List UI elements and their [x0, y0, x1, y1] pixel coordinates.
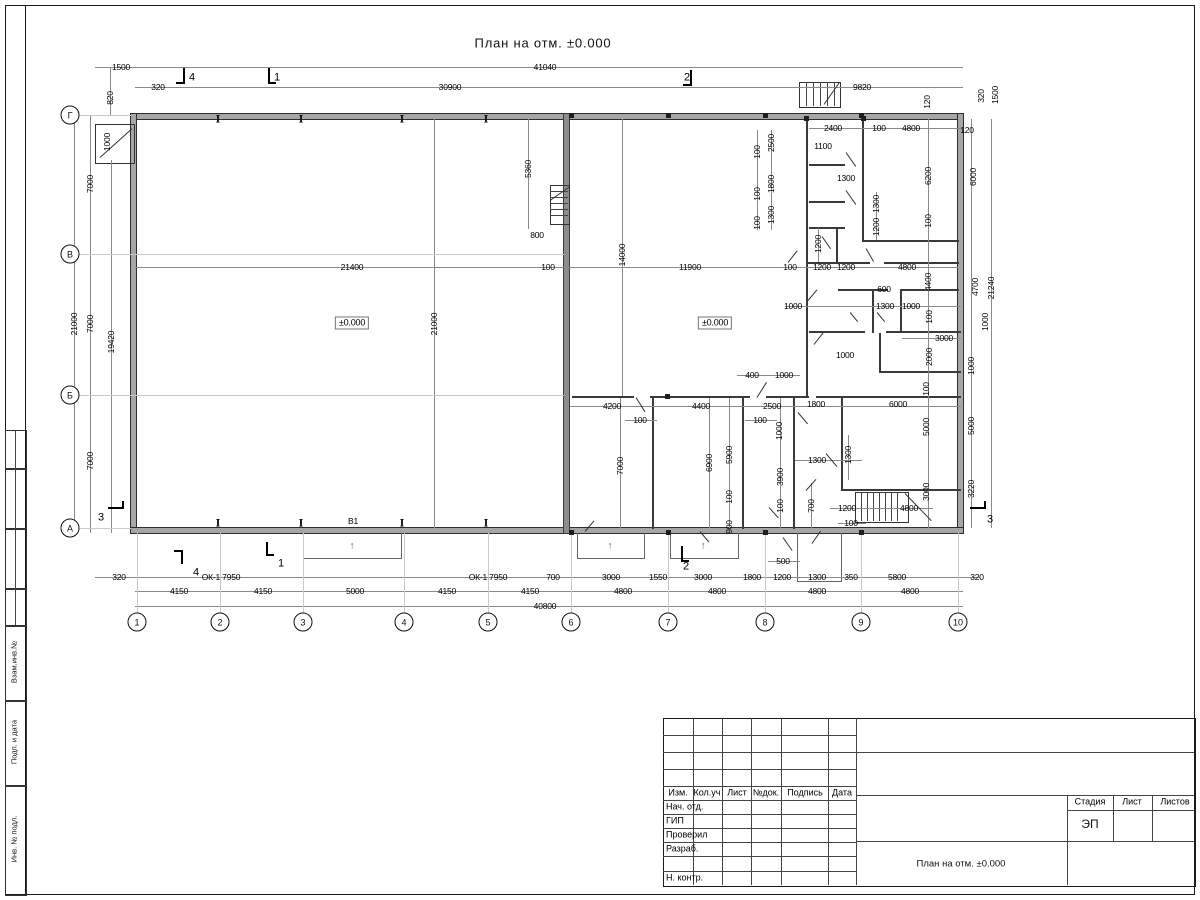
section-number: 1	[278, 559, 284, 570]
titleblock-line	[1067, 810, 1194, 811]
dim-label: 100	[633, 416, 647, 425]
titleblock-header: Лист	[727, 789, 747, 798]
partition-wall	[809, 201, 845, 203]
dim-label: 5000	[922, 418, 931, 436]
titleblock-line	[722, 718, 723, 885]
titleblock-line	[751, 718, 752, 885]
dim-label: 5000	[346, 587, 364, 596]
dim-label: 1200	[837, 263, 855, 272]
stair-riser	[897, 492, 898, 521]
dim-label: 3900	[776, 468, 785, 486]
axis-line	[571, 533, 572, 613]
dim-label: 19420	[107, 331, 116, 354]
axis-bubble-left: В	[61, 245, 80, 264]
dim-label: 6200	[924, 167, 933, 185]
entrance-arrow-icon: ↑	[608, 541, 613, 552]
section-tick	[122, 501, 124, 509]
stair-riser	[873, 492, 874, 521]
drawing-sheet: План на отм. ±0.000 IIIIIIII 15004104032…	[0, 0, 1200, 900]
dim-label: 7000	[616, 457, 625, 475]
dim-label: 21400	[341, 263, 364, 272]
dim-label: 1100	[814, 142, 831, 151]
dim-label: 1300	[808, 573, 826, 582]
dim-label: 4800	[901, 587, 919, 596]
axis-line	[79, 395, 135, 396]
pilaster-icon: I	[484, 115, 489, 126]
dim-label: 3000	[602, 573, 620, 582]
dim-label: 100	[922, 382, 931, 396]
axis-line	[137, 533, 138, 613]
axis-line	[861, 533, 862, 613]
dim-label: 100	[725, 490, 734, 504]
margin-label: Инв. № подл.	[10, 816, 19, 863]
titleblock-header: Изм.	[668, 789, 687, 798]
titleblock-header: Кол.уч	[694, 789, 721, 798]
titleblock-line	[663, 856, 856, 857]
dim-label: 1300	[767, 206, 776, 224]
pilaster-icon: I	[299, 519, 304, 530]
axis-line	[79, 528, 131, 529]
dim-label: 4800	[900, 504, 918, 513]
section-tick	[181, 550, 183, 564]
dim-label: 1200	[813, 263, 831, 272]
titleblock-line	[663, 752, 856, 753]
titleblock-line	[781, 718, 782, 885]
axis-bubble-bottom: 3	[294, 613, 313, 632]
stair-riser	[879, 492, 880, 521]
dim-label: 100	[925, 310, 934, 324]
dim-label: 4400	[692, 402, 710, 411]
axis-line	[404, 533, 405, 613]
wall	[564, 114, 569, 533]
axis-bubble-bottom: 9	[852, 613, 871, 632]
axis-bubble-left: А	[61, 519, 80, 538]
dim-label: 500	[776, 557, 790, 566]
partition-wall	[806, 119, 808, 398]
dim-label: 320	[112, 573, 126, 582]
dim-label: 1200	[838, 504, 856, 513]
dim-label: 1300	[844, 446, 853, 464]
partition-wall	[900, 289, 902, 333]
dim-label: 900	[725, 520, 734, 534]
partition-wall	[872, 289, 874, 333]
dim-label: 120	[960, 126, 974, 135]
dim-label: 4800	[898, 263, 916, 272]
dim-label: 1000	[775, 422, 784, 440]
dim-label: 6000	[969, 168, 978, 186]
sheet-header: Лист	[1122, 798, 1142, 807]
dim-label: 1800	[743, 573, 761, 582]
dim-label: 1500	[991, 86, 1000, 104]
dim-label: 700	[807, 499, 816, 513]
partition-wall	[809, 227, 845, 229]
titleblock-role: Н. контр.	[666, 874, 703, 883]
partition-wall	[843, 489, 961, 491]
axis-bubble-left: Б	[61, 386, 80, 405]
dim-label: 1000	[967, 357, 976, 375]
elevation-mark: ±0.000	[335, 317, 369, 330]
partition-wall	[841, 398, 843, 491]
axis-bubble-bottom: 10	[949, 613, 968, 632]
section-tick	[984, 501, 986, 509]
dim-label: 4700	[971, 278, 980, 296]
dim-label: 3000	[694, 573, 712, 582]
axis-bubble-bottom: 5	[479, 613, 498, 632]
sheets-header: Листов	[1160, 798, 1189, 807]
axis-bubble-bottom: 8	[756, 613, 775, 632]
dim-label: 400	[745, 371, 759, 380]
section-tick	[683, 84, 691, 86]
titleblock-header: №док.	[753, 789, 779, 798]
dim-label: 1550	[649, 573, 667, 582]
stair-riser	[806, 82, 807, 106]
margin-label: Подп. и дата	[10, 720, 19, 764]
stage-header: Стадия	[1075, 798, 1106, 807]
titleblock-role: Проверил	[666, 831, 707, 840]
dim-label: 120	[923, 95, 932, 109]
dim-label: 1800	[807, 400, 825, 409]
axis-bubble-bottom: 1	[128, 613, 147, 632]
dim-label: 5000	[967, 417, 976, 435]
dim-label: 100	[783, 263, 797, 272]
dim-line	[991, 119, 992, 528]
pilaster-icon: I	[400, 115, 405, 126]
partition-wall	[884, 262, 959, 264]
dim-label: 3000	[935, 334, 953, 343]
dim-label: 100	[753, 416, 767, 425]
partition-wall	[863, 240, 959, 242]
stair-riser	[827, 82, 828, 106]
titleblock-line	[856, 752, 1194, 753]
section-number: 2	[684, 73, 690, 84]
stair-riser	[550, 209, 568, 210]
partition-wall	[816, 396, 961, 398]
dim-line	[785, 306, 961, 307]
dim-label: ОК-1 7950	[202, 573, 241, 582]
titleblock-role: Разраб.	[666, 845, 698, 854]
partition-wall	[836, 229, 838, 264]
dim-label: 600	[877, 285, 891, 294]
dim-label: ОК-1 7950	[469, 573, 508, 582]
titleblock-line	[856, 841, 1194, 842]
dim-label: 100	[753, 145, 762, 159]
dim-label: 5360	[524, 160, 533, 178]
dim-label: 1000	[981, 313, 990, 331]
pilaster-icon: I	[216, 115, 221, 126]
axis-line	[765, 533, 766, 613]
column-marker	[569, 113, 574, 118]
dim-label: 2000	[925, 348, 934, 366]
dim-label: 4150	[521, 587, 539, 596]
dim-label: 7000	[86, 452, 95, 470]
column-marker	[859, 530, 864, 535]
column-marker	[665, 394, 670, 399]
dim-label: 1000	[836, 351, 854, 360]
margin-divider	[15, 430, 16, 625]
dim-label: 1500	[112, 63, 130, 72]
axis-bubble-bottom: 2	[211, 613, 230, 632]
titleblock-line	[828, 718, 829, 885]
pilaster-icon: I	[484, 519, 489, 530]
stair-riser	[891, 492, 892, 521]
section-number: 2	[683, 562, 689, 573]
axis-line	[135, 395, 564, 396]
dim-label: 1800	[767, 175, 776, 193]
partition-wall	[809, 331, 865, 333]
axis-line	[79, 254, 135, 255]
partition-wall	[809, 164, 845, 166]
margin-label: Взам.инв.№	[10, 641, 19, 683]
partition-wall	[766, 396, 809, 398]
dim-label: 350	[844, 573, 858, 582]
dim-label: 6000	[889, 400, 907, 409]
dim-label: 320	[151, 83, 165, 92]
dim-label: 6900	[705, 454, 714, 472]
dim-label: 1200	[872, 218, 881, 236]
titleblock-line	[663, 735, 856, 736]
axis-line	[135, 254, 564, 255]
axis-bubble-bottom: 4	[395, 613, 414, 632]
dim-label: 7000	[86, 315, 95, 333]
axis-bubble-bottom: 6	[562, 613, 581, 632]
pilaster-icon: I	[299, 115, 304, 126]
pilaster-icon: I	[400, 519, 405, 530]
section-number: 4	[193, 568, 199, 579]
dim-label: 4150	[254, 587, 272, 596]
dim-label: 4150	[438, 587, 456, 596]
dim-label: 100	[844, 519, 858, 528]
titleblock-line	[1067, 795, 1068, 885]
dim-label: 100	[776, 499, 785, 513]
axis-line	[79, 115, 131, 116]
dim-label: 9820	[853, 83, 871, 92]
section-number: 4	[189, 73, 195, 84]
dim-label: 11900	[679, 263, 701, 272]
dim-label: 100	[541, 263, 555, 272]
titleblock-line	[663, 769, 856, 770]
section-number: 3	[987, 515, 993, 526]
stair-riser	[885, 492, 886, 521]
dim-label: 320	[970, 573, 984, 582]
partition-wall	[879, 333, 881, 373]
margin-cell	[5, 468, 27, 530]
entrance-arrow-icon: ↑	[701, 541, 706, 552]
dim-label: 4400	[924, 273, 933, 291]
wall	[131, 114, 136, 533]
stair-riser	[820, 82, 821, 106]
wall	[958, 114, 963, 533]
dim-label: 100	[753, 187, 762, 201]
dim-label: 820	[106, 91, 115, 105]
dim-label: 100	[924, 214, 933, 228]
partition-wall	[793, 398, 795, 529]
column-marker	[861, 116, 866, 121]
column-marker	[666, 113, 671, 118]
dim-label: 1300	[876, 302, 894, 311]
dim-label: 41040	[534, 63, 557, 72]
dim-label: 320	[977, 89, 986, 103]
stair-riser	[867, 492, 868, 521]
dim-label: 5800	[888, 573, 906, 582]
titleblock-header: Дата	[832, 789, 852, 798]
section-tick	[174, 550, 182, 552]
dim-label: 4800	[902, 124, 920, 133]
elevation-mark: ±0.000	[698, 317, 732, 330]
dim-line	[135, 87, 963, 88]
stair-riser	[861, 492, 862, 521]
pilaster-icon: I	[216, 519, 221, 530]
titleblock-line	[663, 814, 856, 815]
titleblock-line	[856, 718, 857, 885]
titleblock-header: Подпись	[787, 789, 823, 798]
dim-label: 1200	[773, 573, 791, 582]
titleblock-line	[1113, 795, 1114, 841]
titleblock-frame	[663, 718, 1196, 887]
axis-bubble-left: Г	[61, 106, 80, 125]
dim-label: 4200	[603, 402, 621, 411]
dim-label: 1300	[808, 456, 826, 465]
dim-line	[95, 67, 963, 68]
axis-line	[303, 533, 304, 613]
column-marker	[569, 530, 574, 535]
stair-riser	[813, 82, 814, 106]
column-marker	[804, 116, 809, 121]
dim-label: 1000	[775, 371, 793, 380]
partition-wall	[652, 398, 654, 529]
margin-cell	[5, 528, 27, 590]
dim-label: 2400	[824, 124, 842, 133]
dim-label: 7000	[86, 175, 95, 193]
partition-wall	[572, 396, 634, 398]
dim-label: 800	[530, 231, 544, 240]
dim-label: В1	[348, 517, 358, 526]
dim-label: 4800	[808, 587, 826, 596]
dim-label: 21000	[430, 313, 439, 336]
column-marker	[763, 113, 768, 118]
dim-label: 21000	[70, 313, 79, 336]
column-marker	[666, 530, 671, 535]
dim-label: 1200	[814, 235, 823, 253]
column-marker	[763, 530, 768, 535]
entrance-arrow-icon: ↑	[350, 541, 355, 552]
dim-label: 2500	[763, 402, 781, 411]
dim-label: 2500	[767, 134, 776, 152]
titleblock-role: Нач. отд.	[666, 803, 703, 812]
titleblock-line	[1152, 795, 1153, 841]
dim-label: 4150	[170, 587, 188, 596]
dim-label: 700	[546, 573, 560, 582]
dim-label: 4800	[614, 587, 632, 596]
titleblock-line	[856, 795, 1194, 796]
dim-label: 3000	[922, 483, 931, 501]
dim-label: 1000	[103, 133, 112, 151]
dim-label: 1000	[902, 302, 920, 311]
dim-label: 1300	[872, 195, 881, 213]
dim-label: 40800	[534, 602, 557, 611]
partition-wall	[862, 119, 864, 242]
partition-wall	[879, 371, 961, 373]
dim-label: 100	[753, 216, 762, 230]
wall	[131, 114, 963, 119]
stair-riser	[550, 203, 568, 204]
dim-label: 3220	[967, 480, 976, 498]
dim-label: 30900	[439, 83, 462, 92]
axis-line	[668, 533, 669, 613]
section-tick	[266, 554, 274, 556]
dim-label: 1000	[784, 302, 802, 311]
dim-label: 14000	[618, 244, 627, 267]
partition-wall	[742, 398, 744, 529]
dim-label: 21240	[987, 277, 996, 300]
section-tick	[176, 82, 184, 84]
dim-label: 100	[872, 124, 886, 133]
dim-label: 4800	[708, 587, 726, 596]
stair-riser	[550, 191, 568, 192]
margin-cell	[5, 588, 27, 627]
stair-riser	[834, 82, 835, 106]
axis-bubble-bottom: 7	[659, 613, 678, 632]
section-number: 1	[274, 73, 280, 84]
section-number: 3	[98, 513, 104, 524]
margin-cell	[5, 430, 27, 470]
dim-label: 5900	[725, 446, 734, 464]
axis-line	[958, 533, 959, 613]
dim-label: 1300	[837, 174, 855, 183]
stair-riser	[550, 215, 568, 216]
titleblock-role: ГИП	[666, 817, 684, 826]
